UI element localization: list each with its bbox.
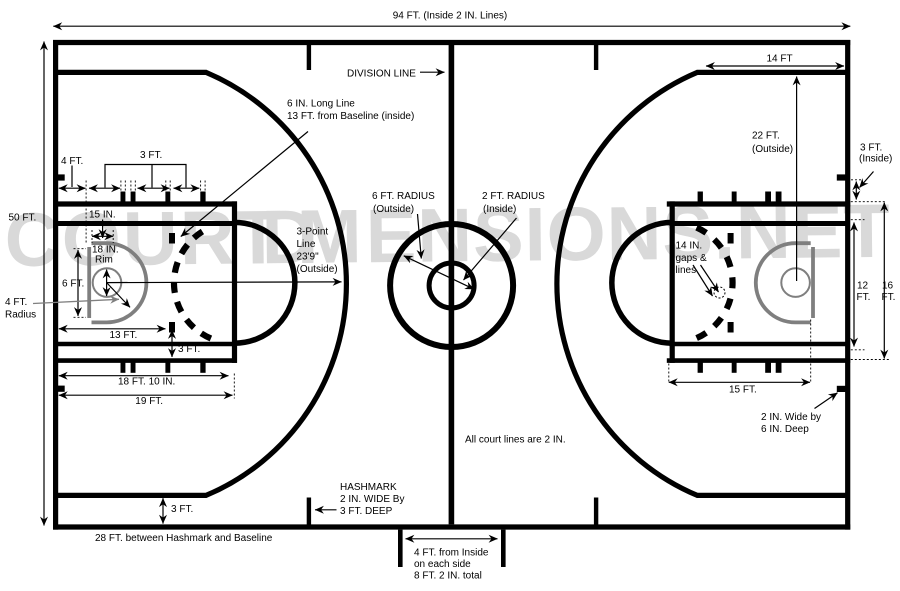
svg-text:3 FT.: 3 FT. [171, 504, 193, 515]
svg-text:3-Point: 3-Point [297, 227, 329, 238]
svg-text:(Outside): (Outside) [752, 144, 793, 155]
svg-text:6 IN. Deep: 6 IN. Deep [761, 424, 809, 435]
svg-text:4 FT.: 4 FT. [5, 297, 27, 308]
svg-text:Radius: Radius [5, 310, 36, 321]
svg-text:gaps &: gaps & [676, 253, 707, 264]
svg-text:on each side: on each side [414, 559, 471, 570]
svg-text:13 FT.: 13 FT. [110, 330, 138, 341]
svg-text:Rim: Rim [95, 255, 113, 266]
svg-text:8 FT. 2 IN. total: 8 FT. 2 IN. total [414, 571, 482, 582]
svg-text:FT.: FT. [857, 292, 871, 303]
svg-text:All court lines are 2 IN.: All court lines are 2 IN. [465, 435, 566, 446]
svg-text:(Outside): (Outside) [373, 204, 414, 215]
svg-text:2 FT. RADIUS: 2 FT. RADIUS [482, 191, 545, 202]
svg-text:28 FT. between Hashmark and Ba: 28 FT. between Hashmark and Baseline [95, 533, 273, 544]
svg-text:6 FT. RADIUS: 6 FT. RADIUS [372, 191, 435, 202]
svg-text:23'9": 23'9" [297, 252, 320, 263]
svg-text:12: 12 [857, 281, 869, 292]
svg-text:15 IN.: 15 IN. [89, 210, 116, 221]
svg-text:lines: lines [676, 265, 697, 276]
svg-text:3 FT. DEEP: 3 FT. DEEP [340, 506, 393, 517]
svg-text:15 FT.: 15 FT. [729, 385, 757, 396]
svg-text:14 FT: 14 FT [767, 54, 793, 65]
svg-text:4 FT. from Inside: 4 FT. from Inside [414, 548, 489, 559]
svg-text:(Outside): (Outside) [297, 264, 338, 275]
svg-text:HASHMARK: HASHMARK [340, 482, 397, 493]
svg-text:18 FT. 10 IN.: 18 FT. 10 IN. [118, 377, 175, 388]
svg-text:94 FT. (Inside 2 IN. Lines): 94 FT. (Inside 2 IN. Lines) [393, 11, 508, 22]
svg-text:FT.: FT. [882, 292, 896, 303]
svg-text:(Inside): (Inside) [859, 154, 892, 165]
svg-text:(Inside): (Inside) [483, 204, 516, 215]
svg-text:3 FT.: 3 FT. [178, 344, 200, 355]
svg-text:3 FT.: 3 FT. [140, 150, 162, 161]
svg-text:DIVISION LINE: DIVISION LINE [347, 69, 416, 80]
svg-text:14 IN.: 14 IN. [676, 241, 703, 252]
svg-text:13 FT. from Baseline (inside): 13 FT. from Baseline (inside) [287, 111, 414, 122]
svg-text:4 FT.: 4 FT. [61, 156, 83, 167]
svg-text:50 FT.: 50 FT. [9, 213, 37, 224]
svg-text:3 FT.: 3 FT. [860, 143, 882, 154]
svg-text:22 FT.: 22 FT. [752, 131, 780, 142]
svg-text:19 FT.: 19 FT. [135, 396, 163, 407]
svg-text:Line: Line [297, 239, 316, 250]
svg-text:2 IN. Wide by: 2 IN. Wide by [761, 412, 821, 423]
svg-text:6 IN. Long Line: 6 IN. Long Line [287, 99, 355, 110]
svg-text:2 IN. WIDE By: 2 IN. WIDE By [340, 494, 404, 505]
svg-text:6 FT.: 6 FT. [62, 279, 84, 290]
